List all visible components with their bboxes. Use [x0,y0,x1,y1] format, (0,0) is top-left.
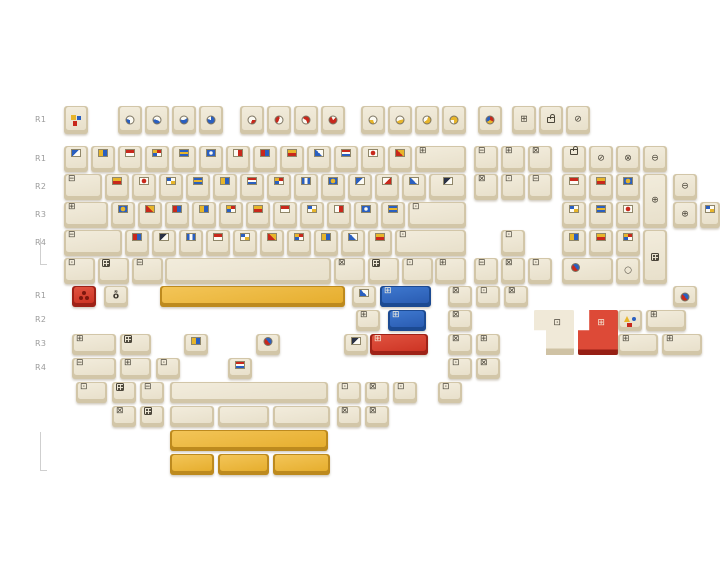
outline-box-icon: ⊞ [666,335,674,344]
key-numlock [562,146,586,172]
key-insert: ⊟ [474,146,498,172]
key-b3-pie [256,334,280,355]
flag-legend [395,149,405,157]
key-f10 [388,106,412,134]
outline-box-icon: ⊠ [508,287,516,296]
flag-legend [260,149,270,157]
dice-icon [102,259,110,267]
key-r3-6 [246,202,270,228]
key-b3-125u [120,334,151,355]
key-f5 [240,106,264,134]
flag-legend [368,149,378,157]
key-blue-tab-15u: ⊞ [388,310,426,331]
outline-box-icon: ⊖ [681,183,689,192]
key-num-plus: ⊕ [643,174,667,228]
key-arrow-down: ⊠ [501,258,525,284]
flag-legend [213,233,223,241]
row-label: R3 [35,339,46,349]
flag-legend [569,177,579,185]
novelty-shape [627,323,632,327]
flag-legend [569,205,579,213]
key-b6-dice [140,406,164,427]
outline-box-icon: ⊞ [419,147,427,156]
outline-box-icon: ⊞ [68,203,76,212]
keycap-top [397,231,464,252]
keycap-set-product-image: R1R1R2R3R4R1R2R3R4⊞⊘⊞⊟⊞⊡⊟⊡⊡⊟⊠⊡⊞⊟⊞⊠⊠⊡⊟⊡⊟⊠… [0,0,720,576]
outline-box-icon: ⊕ [681,211,689,220]
row-label: R2 [35,182,46,192]
flag-legend [220,177,230,185]
key-pagedown: ⊟ [528,174,552,200]
outline-box-icon: ⊡ [160,359,168,368]
key-b5-1u: ⊟ [140,382,164,403]
key-r4-8 [314,230,338,256]
key-b3-175u: ⊞ [72,334,116,355]
outline-box-icon: ⊡ [452,359,460,368]
trefoil-legend [78,291,90,303]
key-delete: ⊠ [474,174,498,200]
key-r1-9 [280,146,304,172]
pie-legend [180,116,189,125]
key-b5-dice [112,382,136,403]
key-r1-10 [307,146,331,172]
flag-legend [193,177,203,185]
key-b5-mod2: ⊠ [365,382,389,403]
flag-legend [375,233,385,241]
key-extra-pie [673,286,697,307]
flag-legend [179,149,189,157]
key-num-multiply: ⊗ [616,146,640,172]
outline-box-icon: ⊡ [553,319,561,328]
key-num-3 [616,230,640,256]
outline-box-icon: ⊡ [505,175,513,184]
flag-legend [301,177,311,185]
key-scrolllock [539,106,563,134]
pie-legend [369,116,378,125]
outline-box-icon: ⊘ [597,155,605,164]
row-label: R2 [35,315,46,325]
lock-icon [547,117,555,123]
key-long-blank-bar [170,382,328,403]
key-r3-9 [327,202,351,228]
pie-legend [153,116,162,125]
outline-box-icon: ⊠ [505,259,513,268]
key-b6-1u-a: ⊠ [112,406,136,427]
outline-box-icon: ⊡ [399,231,407,240]
key-spacebar-yellow-long [170,430,328,451]
key-pause: ⊘ [566,106,590,134]
keycap-top [172,407,212,423]
key-r4-6 [260,230,284,256]
key-num-minus: ⊖ [643,146,667,172]
outline-box-icon: ⊡ [68,259,76,268]
key-f9 [361,106,385,134]
key-r1-2 [91,146,115,172]
key-fn [368,258,399,284]
section-bracket [40,238,47,265]
key-num-dot: ○ [616,258,640,284]
flag-legend [623,177,633,185]
key-lshift: ⊟ [64,230,122,256]
key-b2-wide1: ⊞ [646,310,686,331]
pie-legend [275,116,284,125]
key-r3-2 [138,202,162,228]
key-b2-mod2: ⊠ [448,310,472,331]
flag-legend [359,289,369,297]
flag-legend [172,205,182,213]
key-r2-4 [186,174,210,200]
key-f2 [145,106,169,134]
key-b3-mod2: ⊞ [476,334,500,355]
flag-legend [199,205,209,213]
key-esc-red-novelty [72,286,96,307]
flag-legend [355,177,365,185]
outline-box-icon: ⊡ [406,259,414,268]
outline-box-icon: ⊠ [341,407,349,416]
outline-box-icon: ⊞ [360,311,368,320]
keycap-top [162,287,343,303]
dice-icon [372,259,380,267]
key-f7 [294,106,318,134]
flag-legend [233,149,243,157]
key-r3-10 [354,202,378,228]
key-num-6 [616,202,640,228]
key-r4-3 [179,230,203,256]
key-b2-mod1: ⊞ [356,310,380,331]
outline-box-icon: ⊖ [651,155,659,164]
dice-icon [651,253,659,261]
pie-legend [681,292,690,301]
flag-legend [569,233,579,241]
outline-box-icon: ⊟ [478,259,486,268]
key-iso-enter-red: ⊞ [578,310,618,355]
key-b4-mod2: ⊠ [476,358,500,379]
outline-box-icon: ⊡ [442,383,450,392]
flag-legend [132,233,142,241]
key-num-5 [589,202,613,228]
outline-box-icon: ⊡ [80,383,88,392]
novelty-shape [82,291,86,295]
key-extra-minus: ⊖ [673,174,697,200]
key-b3-wide2: ⊞ [662,334,702,355]
key-spacebar-yellow-625u [160,286,345,307]
key-tab: ⊟ [64,174,102,200]
outline-box-icon: ⊞ [76,335,84,344]
outline-box-icon: ⊡ [412,203,420,212]
key-r2-6 [240,174,264,200]
outline-box-icon: ⊕ [651,197,659,206]
key-script-novelty: ȭ [104,286,128,307]
key-enter: ⊡ [408,202,466,228]
novelty-shape [71,115,76,120]
key-b6-mod2: ⊠ [365,406,389,427]
key-f6 [267,106,291,134]
outline-box-icon: ⊠ [338,259,346,268]
outline-box-icon: ⊞ [374,335,382,344]
flag-legend [596,233,606,241]
pie-legend [423,116,432,125]
key-lalt: ⊟ [132,258,163,284]
flag-legend [152,149,162,157]
key-printscreen: ⊞ [512,106,536,134]
outline-box-icon: ⊡ [505,231,513,240]
key-r1-12 [361,146,385,172]
key-r3-8 [300,202,324,228]
section-bracket [40,432,47,471]
flag-legend [240,233,250,241]
key-f1 [118,106,142,134]
key-blank-bar-175u [170,406,214,427]
key-rshift: ⊡ [395,230,466,256]
key-r2-3 [159,174,183,200]
row-label: R4 [35,363,46,373]
flag-legend [294,233,304,241]
flag-legend [443,177,453,185]
flag-legend [623,233,633,241]
key-r4-5 [233,230,257,256]
key-r1-13 [388,146,412,172]
key-shapes-novelty [618,310,642,331]
outline-box-icon: ⊠ [369,383,377,392]
outline-box-icon: ⊠ [478,175,486,184]
outline-box-icon: ⊞ [520,116,528,125]
flag-legend [280,205,290,213]
key-yellow-bar-2u [218,454,269,475]
esc-novelty-legend [70,114,82,126]
pie-legend [207,116,216,125]
outline-box-icon: ⊗ [624,155,632,164]
key-num-1 [562,230,586,256]
flag-legend [314,149,324,157]
key-r4-9 [341,230,365,256]
outline-box-icon: ⊠ [452,335,460,344]
flag-legend [253,205,263,213]
key-r2-1 [105,174,129,200]
key-b4-flag [228,358,252,379]
key-r4-7 [287,230,311,256]
outline-box-icon: ⊠ [532,147,540,156]
outline-box-icon: ⊞ [439,259,447,268]
flag-legend [118,205,128,213]
novelty-shape [79,296,83,300]
flag-legend [206,149,216,157]
key-ralt: ⊠ [334,258,365,284]
pie-legend [571,263,580,272]
outline-box-icon: ⊠ [452,311,460,320]
key-rctrl: ⊞ [435,258,466,284]
key-backslash [429,174,466,200]
key-f12 [442,106,466,134]
key-b5-mod1: ⊡ [337,382,361,403]
key-end: ⊡ [501,174,525,200]
key-r3-7 [273,202,297,228]
key-r3-1 [111,202,135,228]
outline-box-icon: ⊞ [505,147,513,156]
key-b3-flag2 [344,334,368,355]
outline-box-icon: ⊞ [124,359,132,368]
outline-box-icon: ⊞ [622,335,630,344]
novelty-shape [73,121,77,126]
outline-box-icon: ⊞ [480,335,488,344]
key-extra-flag [700,202,720,228]
key-yellow-bar-225u [273,454,330,475]
key-b3-flag1 [184,334,208,355]
pie-legend [126,116,135,125]
key-b5-mod3: ⊡ [393,382,417,403]
dice-icon [144,407,152,415]
novelty-shape [624,316,630,322]
shapes-novelty-legend [624,315,636,327]
key-b1-mod1: ⊠ [448,286,472,307]
key-pageup: ⊠ [528,146,552,172]
key-r4-2 [152,230,176,256]
flag-legend [274,177,284,185]
key-b3-wide1: ⊞ [618,334,658,355]
key-num-9 [616,174,640,200]
key-b1-mod2: ⊡ [476,286,500,307]
key-space [165,258,331,284]
flag-legend [226,205,236,213]
key-b3-mod1: ⊠ [448,334,472,355]
key-r2-12 [402,174,426,200]
flag-legend [382,177,392,185]
flag-legend [191,337,201,345]
key-yellow-bar-175u [170,454,214,475]
key-r2-2 [132,174,156,200]
flag-legend [351,337,361,345]
key-r1-6 [199,146,223,172]
flag-legend [159,233,169,241]
key-red-enter-225u: ⊞ [370,334,428,355]
pie-legend [264,337,273,346]
keycap-top [167,259,329,280]
key-f4 [199,106,223,134]
flag-legend [166,177,176,185]
flag-legend [71,149,81,157]
flag-legend [235,361,245,369]
key-iso-enter-cream: ⊡ [534,310,574,355]
flag-legend [112,177,122,185]
keycap-top [275,455,328,471]
flag-legend [341,149,351,157]
key-f3 [172,106,196,134]
pie-legend [450,116,459,125]
key-r1-7 [226,146,250,172]
flag-legend [321,233,331,241]
key-num-4 [562,202,586,228]
key-extra-plus: ⊕ [673,202,697,228]
flag-legend [388,205,398,213]
key-b1-mod3: ⊠ [504,286,528,307]
flag-legend [348,233,358,241]
keycap-top [275,407,328,423]
key-r2-7 [267,174,291,200]
pie-legend [396,116,405,125]
key-blank-bar-225u [273,406,330,427]
key-menu: ⊡ [402,258,433,284]
flag-legend [596,205,606,213]
outline-box-icon: ○ [624,267,632,276]
key-arrow-left: ⊟ [474,258,498,284]
key-f8 [321,106,345,134]
key-num-2 [589,230,613,256]
keycap-top [220,455,267,471]
key-novelty-pie [478,106,502,134]
key-b5-mod4: ⊡ [438,382,462,403]
key-b1-flag [352,286,376,307]
outline-box-icon: ⊟ [532,175,540,184]
outline-box-icon: ⊟ [478,147,486,156]
key-b4-175u: ⊟ [72,358,116,379]
key-b4-125u: ⊞ [120,358,151,379]
keycap-top [172,383,326,399]
row-label: R3 [35,210,46,220]
flag-legend [145,205,155,213]
flag-legend [98,149,108,157]
novelty-shape [77,116,81,120]
key-blue-backspace-2u: ⊞ [380,286,431,307]
key-home: ⊞ [501,146,525,172]
script-legend: ȭ [113,292,119,301]
novelty-shape [85,296,89,300]
key-r4-1 [125,230,149,256]
outline-box-icon: ⊘ [574,116,582,125]
key-r3-4 [192,202,216,228]
flag-legend [705,205,715,213]
key-arrow-up: ⊡ [501,230,525,256]
key-lwin [98,258,129,284]
key-num-0 [562,258,613,284]
key-esc [64,106,88,134]
flag-legend [125,149,135,157]
key-r2-9 [321,174,345,200]
outline-box-icon: ⊠ [452,287,460,296]
outline-box-icon: ⊟ [68,231,76,240]
keycap-top [172,455,212,471]
key-arrow-right: ⊡ [528,258,552,284]
row-label: R1 [35,291,46,301]
row-label: R1 [35,115,46,125]
flag-legend [307,205,317,213]
flag-legend [409,177,419,185]
key-capslock: ⊞ [64,202,108,228]
key-r3-5 [219,202,243,228]
key-f11 [415,106,439,134]
outline-box-icon: ⊡ [341,383,349,392]
key-num-divide: ⊘ [589,146,613,172]
flag-legend [186,233,196,241]
key-r2-8 [294,174,318,200]
outline-box-icon: ⊠ [116,407,124,416]
key-num-enter [643,230,667,284]
outline-box-icon: ⊟ [68,175,76,184]
keycap-top [220,407,267,423]
flag-legend [267,233,277,241]
outline-box-icon: ⊞ [597,319,605,328]
key-b4-mod1: ⊡ [448,358,472,379]
keycap-top [172,431,326,447]
outline-box-icon: ⊟ [136,259,144,268]
pie-legend [248,116,257,125]
flag-legend [287,149,297,157]
key-r1-1 [64,146,88,172]
key-r3-11 [381,202,405,228]
pie-legend [302,116,311,125]
row-label: R1 [35,154,46,164]
outline-box-icon: ⊠ [480,359,488,368]
key-backspace: ⊞ [415,146,466,172]
key-b5-125u: ⊡ [76,382,107,403]
